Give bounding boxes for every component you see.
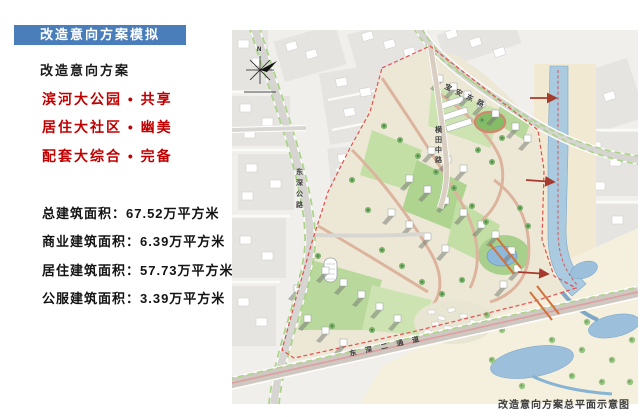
section-heading: 改造意向方案 bbox=[40, 60, 130, 79]
road-label-dongshen-highway: 东深公路 bbox=[295, 167, 303, 212]
svg-text:N: N bbox=[257, 47, 261, 53]
stat-residential-area: 居住建筑面积：57.73万平方米 bbox=[42, 260, 234, 279]
highlight-line: 居住大社区 • 幽美 bbox=[42, 117, 173, 137]
road-label-hengtian-middle-road: 横田中路 bbox=[434, 125, 442, 166]
stat-commercial-area: 商业建筑面积：6.39万平方米 bbox=[42, 231, 225, 250]
stat-public-area: 公服建筑面积：3.39万平方米 bbox=[42, 288, 225, 307]
highlight-line: 滨河大公园 • 共享 bbox=[42, 89, 173, 109]
title-badge: 改造意向方案模拟 bbox=[14, 25, 186, 45]
highlight-line: 配套大综合 • 完备 bbox=[42, 146, 173, 166]
master-plan-map: N 东深公路 横田中路 宝安东路 东深二通道 bbox=[232, 30, 638, 404]
slide: 改造意向方案模拟 改造意向方案 滨河大公园 • 共享 居住大社区 • 幽美 配套… bbox=[0, 0, 640, 417]
stat-total-area: 总建筑面积：67.52万平方米 bbox=[42, 203, 220, 222]
map-caption: 改造意向方案总平面示意图 bbox=[498, 396, 630, 411]
